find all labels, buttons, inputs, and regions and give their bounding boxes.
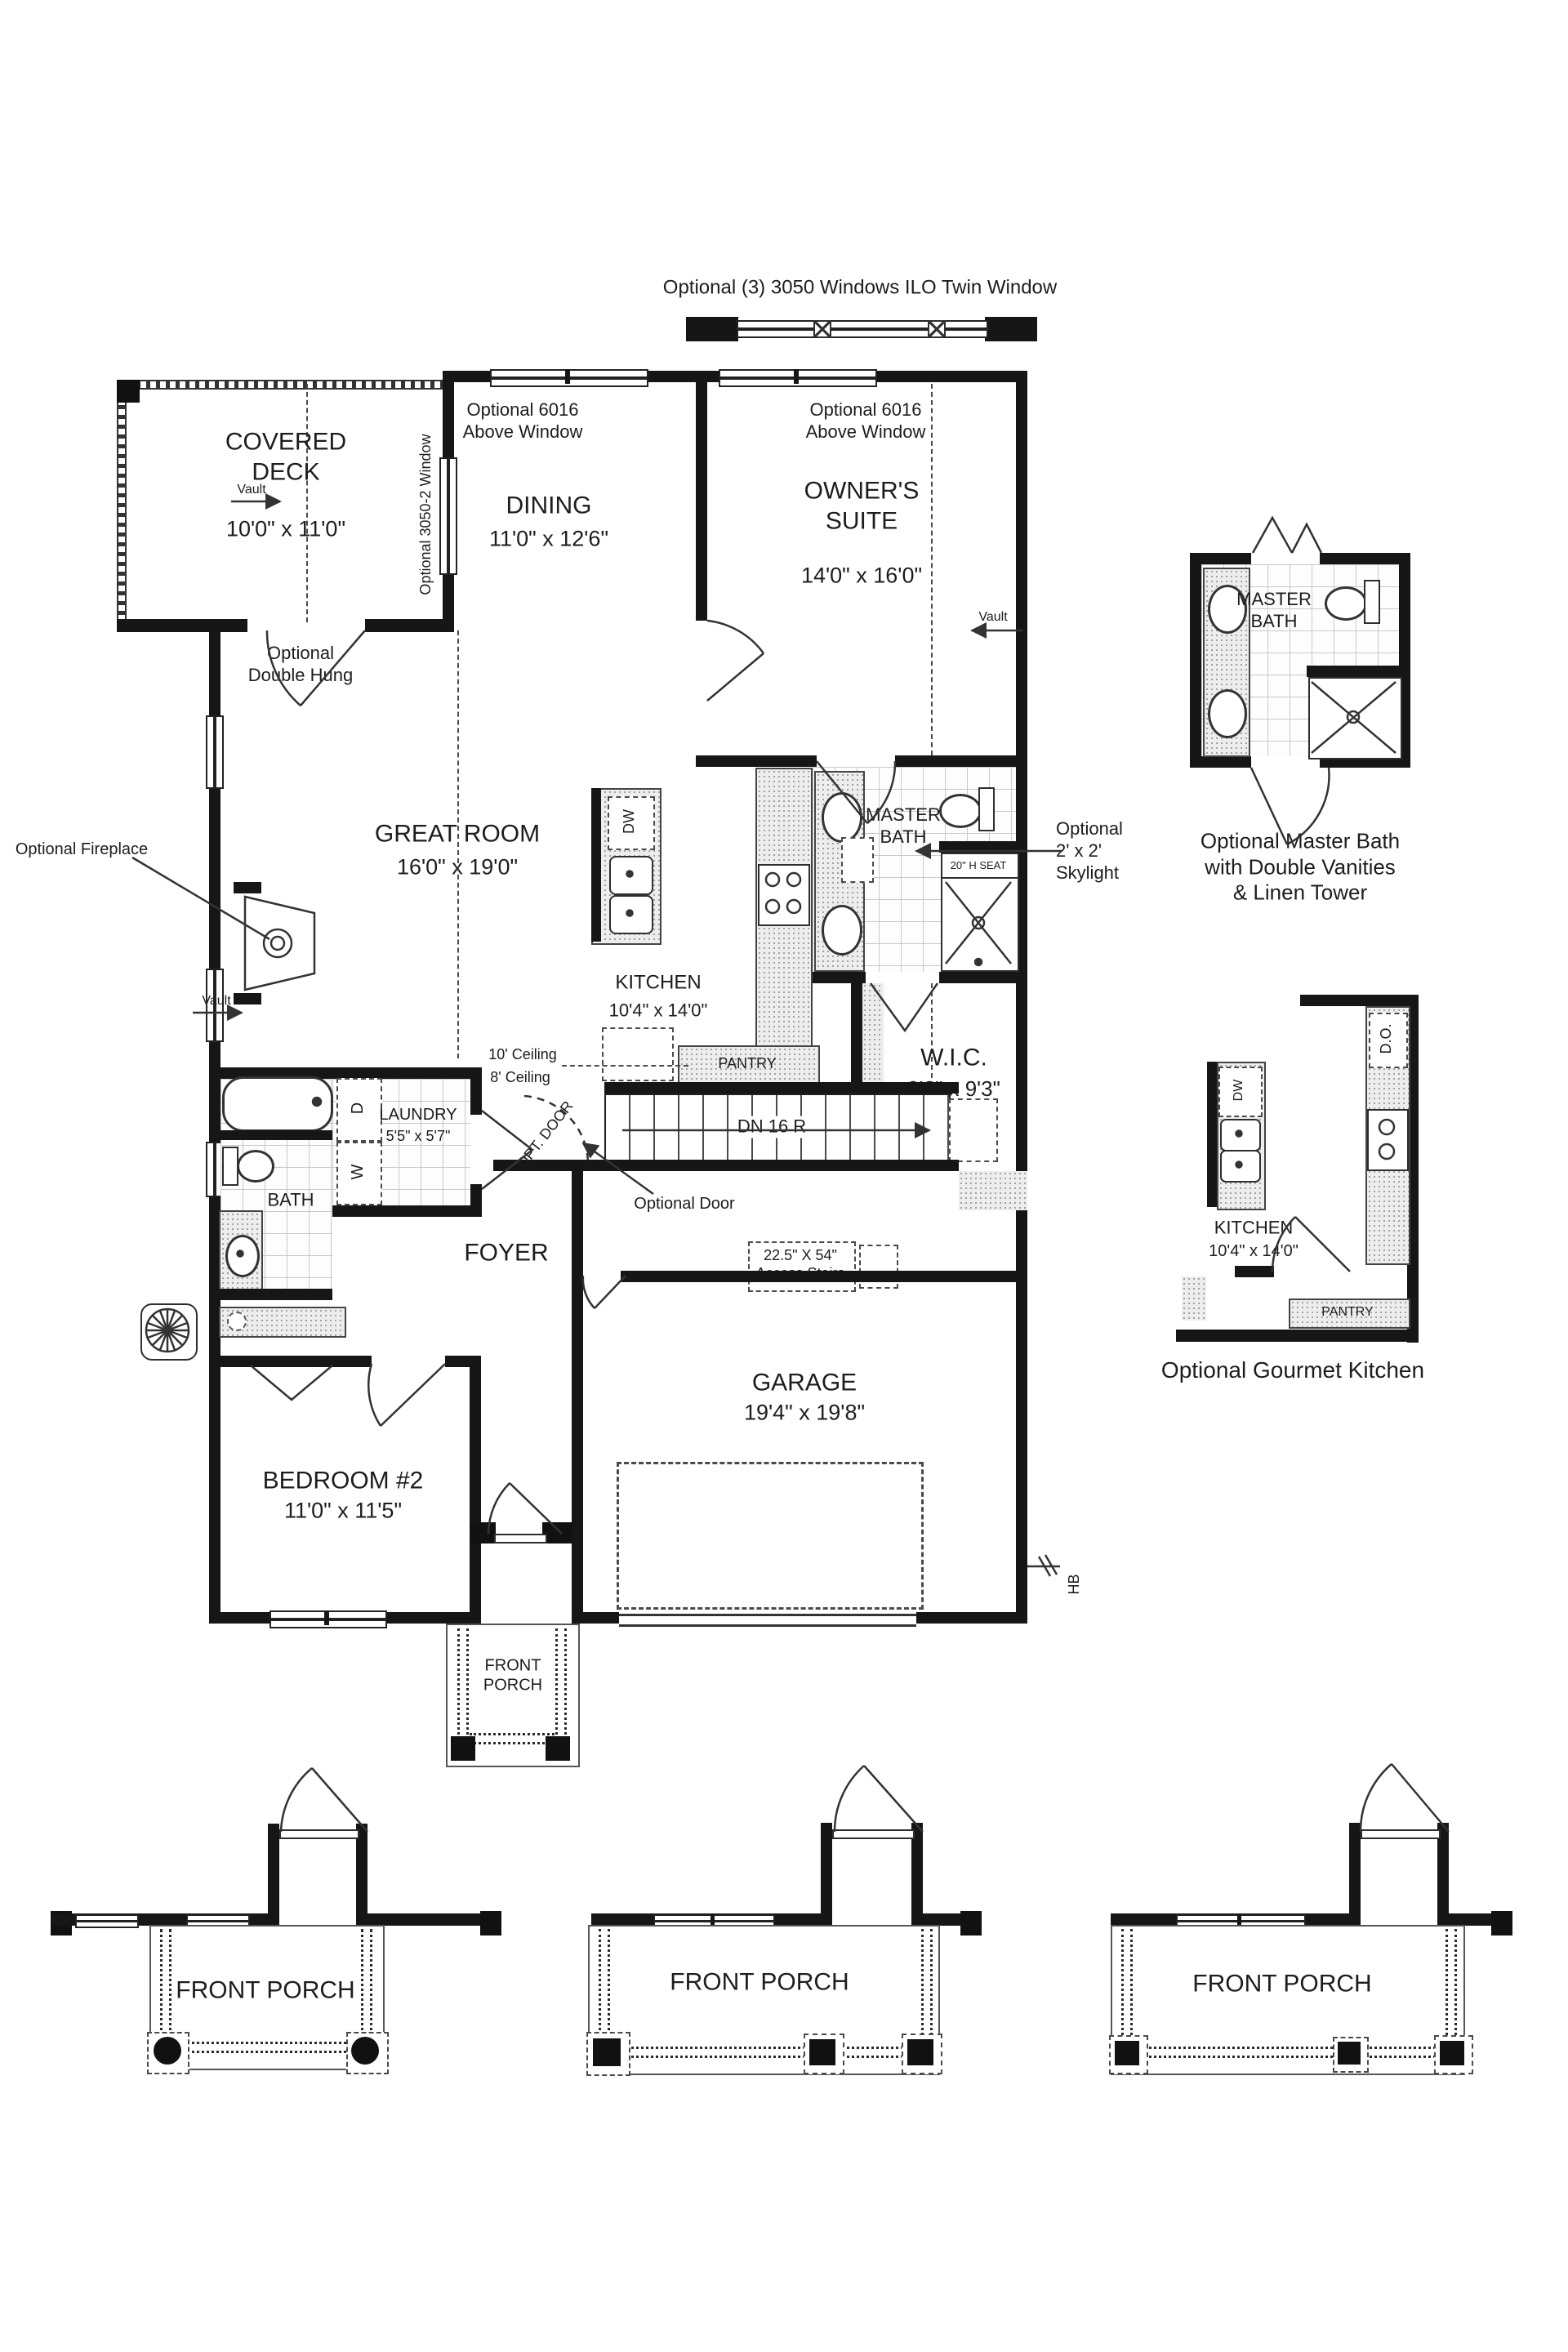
optional-3050-window-label: Optional 3050-2 Window [417, 434, 435, 595]
skylight-box [841, 837, 874, 883]
porch1-door [281, 1768, 367, 1832]
wall [851, 983, 862, 1089]
inset-island-wall [1207, 1062, 1217, 1207]
wall [1320, 553, 1410, 564]
porch-edge-dots [611, 2047, 920, 2058]
porch-column [451, 1736, 475, 1761]
room-name-kitchen: KITCHEN [615, 970, 701, 994]
porch-square-column [907, 2039, 933, 2065]
room-dims-kitchen: 10'4" x 14'0" [609, 1000, 708, 1022]
bathtub [222, 1076, 333, 1132]
wall [1349, 1823, 1361, 1925]
window-detail-cap-right [985, 317, 1037, 341]
room-name-laundry: LAUNDRY [379, 1105, 457, 1125]
wall [813, 972, 866, 983]
optional-double-hung-label: Optional Double Hung [248, 643, 353, 687]
wall [939, 972, 1027, 983]
wall [1307, 666, 1410, 677]
window-mullion-icon [813, 320, 831, 338]
porch1-window [75, 1914, 139, 1928]
porch-edge-dots [171, 2042, 361, 2053]
vault-label-great-room: Vault [202, 993, 230, 1009]
optional-cabinet-box [602, 1027, 674, 1081]
toilet-tank [978, 787, 995, 831]
ceiling-8-label: 8' Ceiling [490, 1069, 550, 1087]
hose-bib-mark [1027, 1555, 1060, 1576]
wall-dining-suite [696, 371, 707, 621]
inset-mb-caption: Optional Master Bath with Double Vanitie… [1200, 828, 1400, 906]
wall-cap [480, 1911, 501, 1935]
window-tick [1237, 1914, 1241, 1925]
wall [321, 1067, 482, 1079]
deck-railing-top [117, 380, 454, 390]
optional-6016-label-dining: Optional 6016 Above Window [463, 399, 583, 443]
room-dims-garage: 19'4" x 19'8" [744, 1400, 865, 1427]
closet-bifold-door [251, 1365, 332, 1400]
inset-kitchen-dims: 10'4" x 14'0" [1209, 1241, 1298, 1261]
porch3-label: FRONT PORCH [1192, 1970, 1371, 2000]
wall-stairs-top [604, 1082, 959, 1094]
toilet [237, 1150, 274, 1183]
inset-pantry-label: PANTRY [1321, 1304, 1373, 1321]
porch-round-column [154, 2037, 181, 2065]
sink [1208, 689, 1247, 738]
stairs-down-label: DN 16 R [733, 1116, 811, 1138]
garage-entry-door [583, 1276, 626, 1308]
inset-hatch [1182, 1276, 1206, 1321]
room-name-dining: DINING [506, 492, 592, 522]
toilet-tank [1364, 580, 1380, 624]
room-name-foyer: FOYER [464, 1239, 548, 1269]
optional-6016-label-suite: Optional 6016 Above Window [806, 399, 926, 443]
room-dims-covered-deck: 10'0" x 11'0" [226, 516, 345, 543]
porch-edge-dots [1121, 1929, 1133, 2045]
wall [1190, 553, 1201, 768]
porch-square-column [593, 2038, 621, 2066]
porch3-door-threshold [1361, 1829, 1441, 1839]
wall-cap [960, 1911, 982, 1935]
room-name-wic: W.I.C. [920, 1044, 987, 1074]
inset-kitchen-name: KITCHEN [1214, 1218, 1294, 1240]
garage-door [619, 1614, 916, 1627]
range [758, 864, 810, 926]
deck-railing-left [117, 380, 127, 625]
wall [821, 1823, 832, 1926]
porch-square-column [809, 2039, 835, 2065]
window-tick [710, 1914, 715, 1925]
room-dims-dining: 11'0" x 12'6" [489, 526, 608, 553]
wall [1235, 1266, 1274, 1277]
bedroom2-door [368, 1364, 445, 1426]
floor-plan-canvas: Optional (3) 3050 Windows ILO Twin Windo… [0, 0, 1568, 2352]
shower [941, 877, 1019, 972]
wall [117, 619, 247, 632]
fireplace-stub [234, 993, 261, 1004]
great-room-window [206, 715, 224, 789]
sink [822, 905, 862, 955]
inset-range [1367, 1109, 1409, 1171]
toilet [1325, 586, 1367, 621]
room-name-bedroom2: BEDROOM #2 [263, 1467, 424, 1497]
front-door-threshold [494, 1534, 547, 1543]
wall [916, 1612, 1027, 1624]
porch3-door [1361, 1764, 1449, 1832]
toilet [939, 794, 982, 828]
porch1-label: FRONT PORCH [176, 1976, 354, 2007]
wall [895, 755, 1027, 767]
wall-garage-left [572, 1171, 583, 1624]
porch-edge-dots [457, 1628, 469, 1735]
window-detail-glass [737, 320, 988, 338]
ceiling-10-label: 10' Ceiling [488, 1046, 557, 1064]
wall [209, 1130, 332, 1140]
vault-label-suite: Vault [978, 609, 1007, 626]
wall [365, 619, 454, 632]
kitchen-sink-bowl [609, 895, 653, 934]
wall [1190, 756, 1251, 768]
room-name-owners-suite: OWNER'S SUITE [804, 476, 920, 536]
fireplace-flue-inner [271, 937, 284, 950]
room-dims-owners-suite: 14'0" x 16'0" [801, 563, 922, 590]
washer-label: W [348, 1165, 367, 1180]
hose-bib-label: HB [1066, 1574, 1084, 1594]
deck-vault-line [306, 384, 308, 622]
wall [209, 1289, 332, 1300]
fireplace-box [245, 897, 314, 990]
optional-door-label: Optional Door [634, 1194, 734, 1214]
wall-stairs-bottom [493, 1160, 959, 1171]
deck-dining-window [439, 457, 457, 575]
wall [572, 1612, 619, 1624]
suite-door [707, 621, 764, 701]
wall [1176, 1330, 1419, 1342]
wall [470, 1067, 482, 1115]
suite-vault-line [931, 384, 933, 755]
room-dims-laundry: 5'5" x 5'7" [386, 1128, 451, 1146]
porch2-label: FRONT PORCH [670, 1968, 849, 1998]
room-dims-bedroom2: 11'0" x 11'5" [284, 1498, 402, 1525]
porch-square-column [1338, 2042, 1361, 2065]
wall-exterior-right [1016, 371, 1027, 1624]
kitchen-sink-bowl [609, 856, 653, 895]
room-name-master-bath: MASTER BATH [866, 804, 941, 849]
porch-edge-dots [599, 1929, 610, 2045]
porch-edge-dots [160, 1929, 171, 2042]
room-name-bath: BATH [267, 1190, 314, 1212]
inset-shower [1308, 677, 1402, 759]
porch-edge-dots [555, 1628, 567, 1735]
porch-edge-dots [361, 1929, 372, 2042]
wall [696, 755, 817, 767]
great-room-vault-line [457, 630, 459, 1058]
wall-cap [1491, 1911, 1512, 1935]
fireplace-leader [132, 857, 269, 939]
room-name-garage: GARAGE [752, 1369, 857, 1399]
window-tick [565, 369, 570, 384]
wall [470, 1356, 481, 1612]
wall [1300, 995, 1419, 1006]
dishwasher-label: DW [621, 809, 639, 834]
toilet-tank [222, 1147, 238, 1186]
inset-kitchen-caption: Optional Gourmet Kitchen [1161, 1356, 1424, 1384]
porch-edge-dots [1445, 1929, 1457, 2045]
porch-round-column [351, 2037, 379, 2065]
dryer-label: D [348, 1102, 367, 1114]
deck-post [117, 380, 140, 403]
vault-label-deck: Vault [237, 482, 265, 498]
stair-landing [949, 1098, 998, 1162]
seat-label: 20" H SEAT [951, 859, 1007, 872]
inset-mb-room-label: MASTER BATH [1236, 589, 1312, 633]
closet-rod [227, 1312, 247, 1331]
fireplace-stub [234, 882, 261, 893]
fireplace-flue [264, 929, 292, 957]
inset-sink-bowl [1220, 1150, 1261, 1183]
inset-dishwasher-label: DW [1231, 1080, 1247, 1102]
skylight-label: Optional 2' x 2' Skylight [1056, 818, 1178, 884]
hall-hatch [959, 1171, 1027, 1210]
equipment-fan-icon [140, 1303, 198, 1361]
room-name-covered-deck: COVERED DECK [225, 427, 346, 487]
window-tick [794, 369, 799, 384]
wall [268, 1824, 279, 1926]
window-mullion-icon [928, 320, 946, 338]
optional-fireplace-label: Optional Fireplace [16, 840, 148, 859]
garage-door-area [617, 1462, 924, 1610]
porch-column [546, 1736, 570, 1761]
porch-edge-dots [921, 1929, 933, 2045]
room-name-front-porch: FRONT PORCH [483, 1656, 542, 1696]
top-window-note: Optional (3) 3050 Windows ILO Twin Windo… [663, 275, 1057, 299]
sink [822, 792, 862, 843]
sink [225, 1235, 260, 1277]
door-jamb [470, 1522, 496, 1543]
window-tick [324, 1610, 329, 1625]
porch-edge-dots [470, 1733, 555, 1744]
wall [321, 1205, 482, 1217]
wall-garage-top [621, 1271, 1027, 1282]
ceiling-break-line [562, 1065, 688, 1067]
porch2-door-threshold [832, 1829, 915, 1839]
inset-mb-entry-door [1253, 518, 1321, 553]
porch1-door-threshold [279, 1829, 359, 1839]
wall [939, 841, 1027, 853]
porch-square-column [1115, 2041, 1139, 2065]
kitchen-island-wall [591, 788, 601, 942]
double-oven-label: D.O. [1378, 1023, 1396, 1053]
inset-sink-bowl [1220, 1119, 1261, 1151]
porch-square-column [1440, 2041, 1464, 2065]
window-detail-cap-left [686, 317, 738, 341]
porch-edge-dots [1134, 2047, 1442, 2058]
pantry-label: PANTRY [718, 1055, 776, 1073]
porch2-door [835, 1766, 923, 1832]
wall [209, 1356, 372, 1367]
